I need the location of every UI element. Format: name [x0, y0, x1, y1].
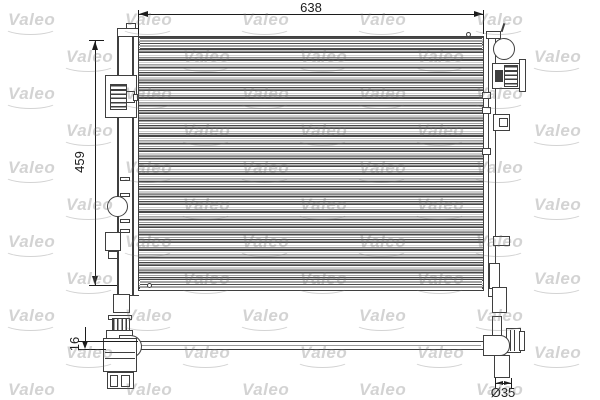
ext-line: [89, 285, 117, 286]
left-fitting-body: [103, 338, 137, 372]
right-tank-top-cap: [486, 31, 501, 39]
right-upper-bracket-notch: [499, 118, 508, 127]
valeo-watermark: Valeo: [242, 306, 289, 326]
right-tank-clip: [482, 92, 491, 99]
valeo-watermark: Valeo: [8, 10, 55, 30]
left-fitting-base-pad: [110, 375, 118, 387]
left-mount-bracket: [105, 232, 121, 251]
core-width-label: 638: [291, 0, 331, 16]
right-bottom-foot-lower: [492, 287, 507, 313]
valeo-watermark: Valeo: [242, 380, 289, 400]
valeo-watermark: Valeo: [242, 10, 289, 30]
left-inlet-splined-connector: [110, 84, 127, 110]
left-tank-top-cap: [117, 28, 139, 37]
filler-cap-tick: [501, 23, 505, 32]
valeo-watermark: Valeo: [125, 306, 172, 326]
right-mid-tab: [493, 236, 510, 246]
valeo-watermark: Valeo: [359, 380, 406, 400]
left-tank-top-step: [126, 23, 136, 29]
valeo-watermark: Valeo: [359, 10, 406, 30]
core-thickness-label: 16: [67, 324, 83, 364]
core-screw-top-right: [466, 32, 471, 37]
valeo-watermark: Valeo: [8, 84, 55, 104]
valeo-watermark: Valeo: [534, 269, 581, 289]
arrowhead-down: [82, 341, 88, 349]
left-fitting-body-line: [105, 358, 135, 359]
right-outlet-plate: [519, 59, 526, 92]
valeo-watermark: Valeo: [359, 306, 406, 326]
valeo-watermark: Valeo: [8, 232, 55, 252]
valeo-watermark: Valeo: [534, 343, 581, 363]
valeo-watermark: Valeo: [534, 121, 581, 141]
left-port-circle: [107, 196, 128, 217]
right-bottom-foot-upper: [489, 263, 500, 289]
filler-cap: [493, 38, 515, 60]
pipe-diameter-label: Ø35: [483, 385, 523, 400]
valeo-watermark: Valeo: [8, 158, 55, 178]
dim-line: [95, 40, 96, 286]
left-tank-rib: [120, 219, 130, 223]
valeo-watermark: Valeo: [534, 195, 581, 215]
core-bottom-header: [140, 279, 482, 289]
valeo-watermark: Valeo: [8, 306, 55, 326]
valeo-watermark: Valeo: [66, 121, 113, 141]
core-screw-bottom-left: [147, 283, 152, 288]
radiator-core: [138, 36, 484, 291]
right-connector-plate: [519, 331, 525, 351]
core-profile-midline: [140, 345, 481, 346]
right-outlet-plug: [495, 70, 503, 82]
right-outlet-splined-connector: [504, 65, 518, 87]
right-fitting-elbow: [483, 335, 510, 356]
core-height-label: 459: [72, 142, 88, 182]
valeo-watermark: Valeo: [534, 47, 581, 67]
left-mount-bracket-foot: [108, 251, 118, 259]
left-tank-seam: [132, 29, 134, 296]
right-connector-rib: [514, 330, 515, 351]
left-fitting-body-line: [105, 352, 135, 353]
arrowhead-up: [92, 41, 98, 50]
right-connector-rib: [510, 330, 511, 351]
right-tank-clip: [482, 148, 491, 155]
arrowhead-left: [139, 11, 148, 17]
right-tank-clip: [482, 107, 491, 114]
valeo-watermark: Valeo: [66, 47, 113, 67]
valeo-watermark: Valeo: [66, 269, 113, 289]
left-tank-rib: [120, 177, 130, 181]
left-inlet-stub-tip: [133, 94, 138, 101]
radiator-technical-drawing: 638 459 16: [0, 0, 600, 400]
left-fitting-base-pad: [121, 375, 130, 387]
right-down-pipe: [494, 355, 510, 378]
arrowhead-down: [92, 276, 98, 285]
valeo-watermark: Valeo: [8, 380, 55, 400]
left-tank-rib: [120, 229, 130, 233]
core-top-header: [140, 38, 482, 49]
left-bottom-foot: [113, 294, 130, 313]
arrowhead-right: [474, 11, 483, 17]
